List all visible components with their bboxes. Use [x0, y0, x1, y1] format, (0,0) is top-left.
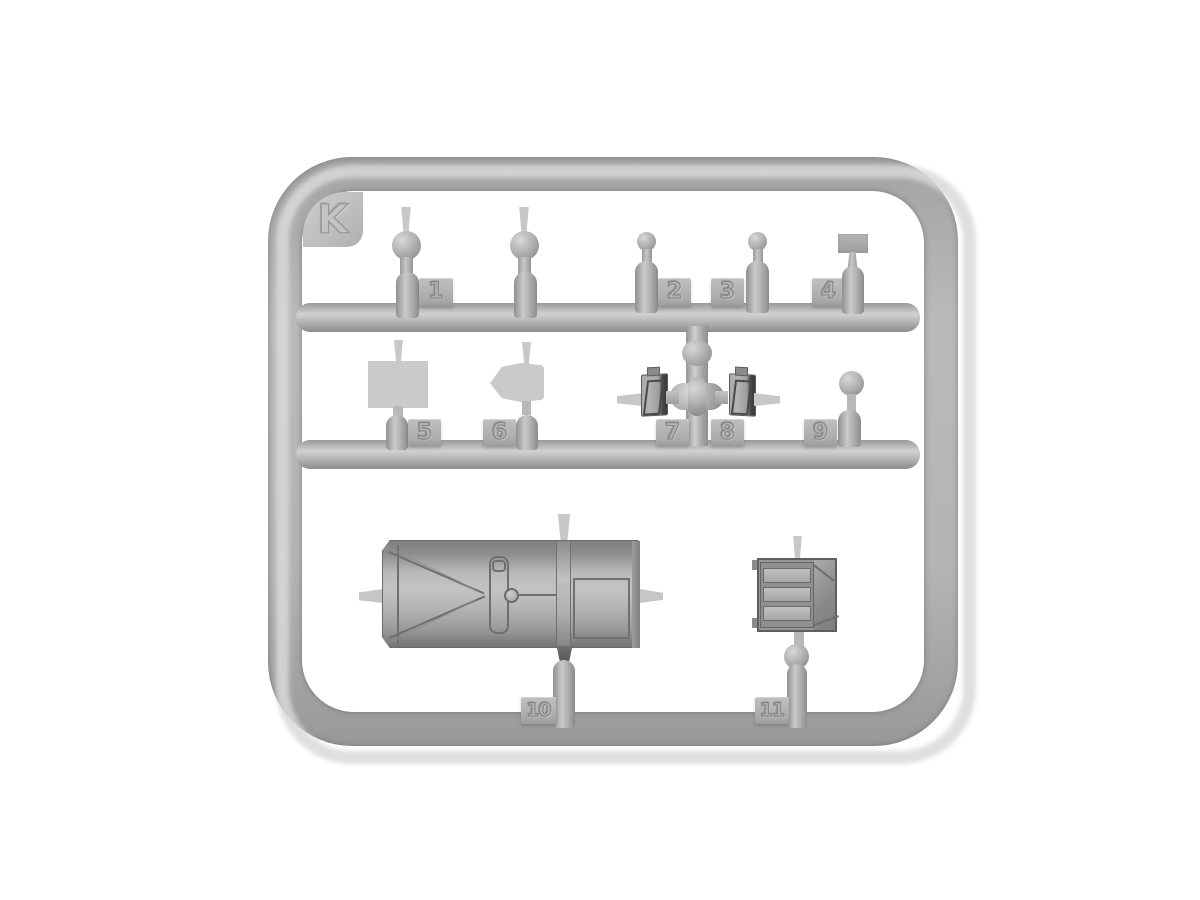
part-8-pedal-notch: [735, 367, 748, 377]
runner-bulge: [682, 340, 712, 366]
part-number-tag-9: 9: [804, 419, 837, 446]
part-number-tag-10: 10: [521, 697, 556, 724]
part-2-gate-stub: [635, 261, 658, 313]
part-1-gate-stub: [396, 272, 419, 318]
part-9-disc-body: [839, 371, 864, 396]
part-10-panel: [573, 578, 630, 639]
part-11-gate-cylinder: [787, 664, 807, 728]
frame-label: K: [318, 200, 349, 240]
part-number-tag-1: 1: [419, 278, 453, 306]
part-8-pedal-body: [729, 373, 756, 416]
part-number-tag-4: 4: [812, 278, 845, 306]
part-1-ball-knob: [392, 231, 421, 260]
part-5-gate-stub: [386, 415, 408, 450]
part-6-gate-stub: [516, 415, 538, 450]
part-number-tag-5: 5: [408, 419, 441, 446]
part-7-inner-arm: [666, 391, 679, 404]
part-11-body: [757, 558, 837, 632]
part-number-tag-7: 7: [656, 419, 689, 446]
part-10-end-face: [632, 541, 641, 649]
part-number-tag-2: 2: [658, 278, 691, 306]
runner-rail-1: [296, 303, 920, 332]
part-7-pedal-notch: [647, 367, 660, 377]
part-10-body: [382, 540, 640, 648]
part-10-left-ridge: [397, 545, 399, 644]
part-11-slat-1: [763, 568, 811, 583]
part-11-lug-bottom: [752, 618, 757, 628]
part-10-filler-cap: [504, 588, 519, 603]
part-10-hinge: [492, 560, 506, 572]
part-3-gate-stub: [746, 261, 769, 313]
part-11-slat-3: [763, 606, 811, 621]
part-number-tag-8: 8: [711, 419, 744, 446]
part-5-square-plate: [368, 361, 428, 408]
part-7-pedal-body: [641, 373, 668, 416]
part-11-slat-2: [763, 587, 811, 602]
part-11-lug-top: [752, 560, 757, 570]
part-4-gate-stub: [842, 266, 864, 314]
part-10-gate-cylinder: [553, 660, 575, 728]
part-1-duplicate-gate-stub: [514, 272, 537, 318]
part-1-duplicate-ball-knob: [510, 231, 539, 260]
part-6-stem: [522, 401, 531, 415]
sprue-render: K 1 2 3 4: [0, 0, 1200, 900]
part-10-strap: [556, 541, 571, 649]
runner-cross-joint-vertical: [688, 377, 706, 416]
part-4-rect-pad: [838, 234, 868, 253]
part-8-inner-arm: [715, 391, 728, 404]
part-number-tag-11: 11: [755, 697, 789, 724]
part-9-gate-stub: [838, 410, 861, 447]
part-10-cap-line: [519, 594, 557, 596]
part-number-tag-6: 6: [483, 419, 516, 446]
part-number-tag-3: 3: [711, 278, 744, 306]
